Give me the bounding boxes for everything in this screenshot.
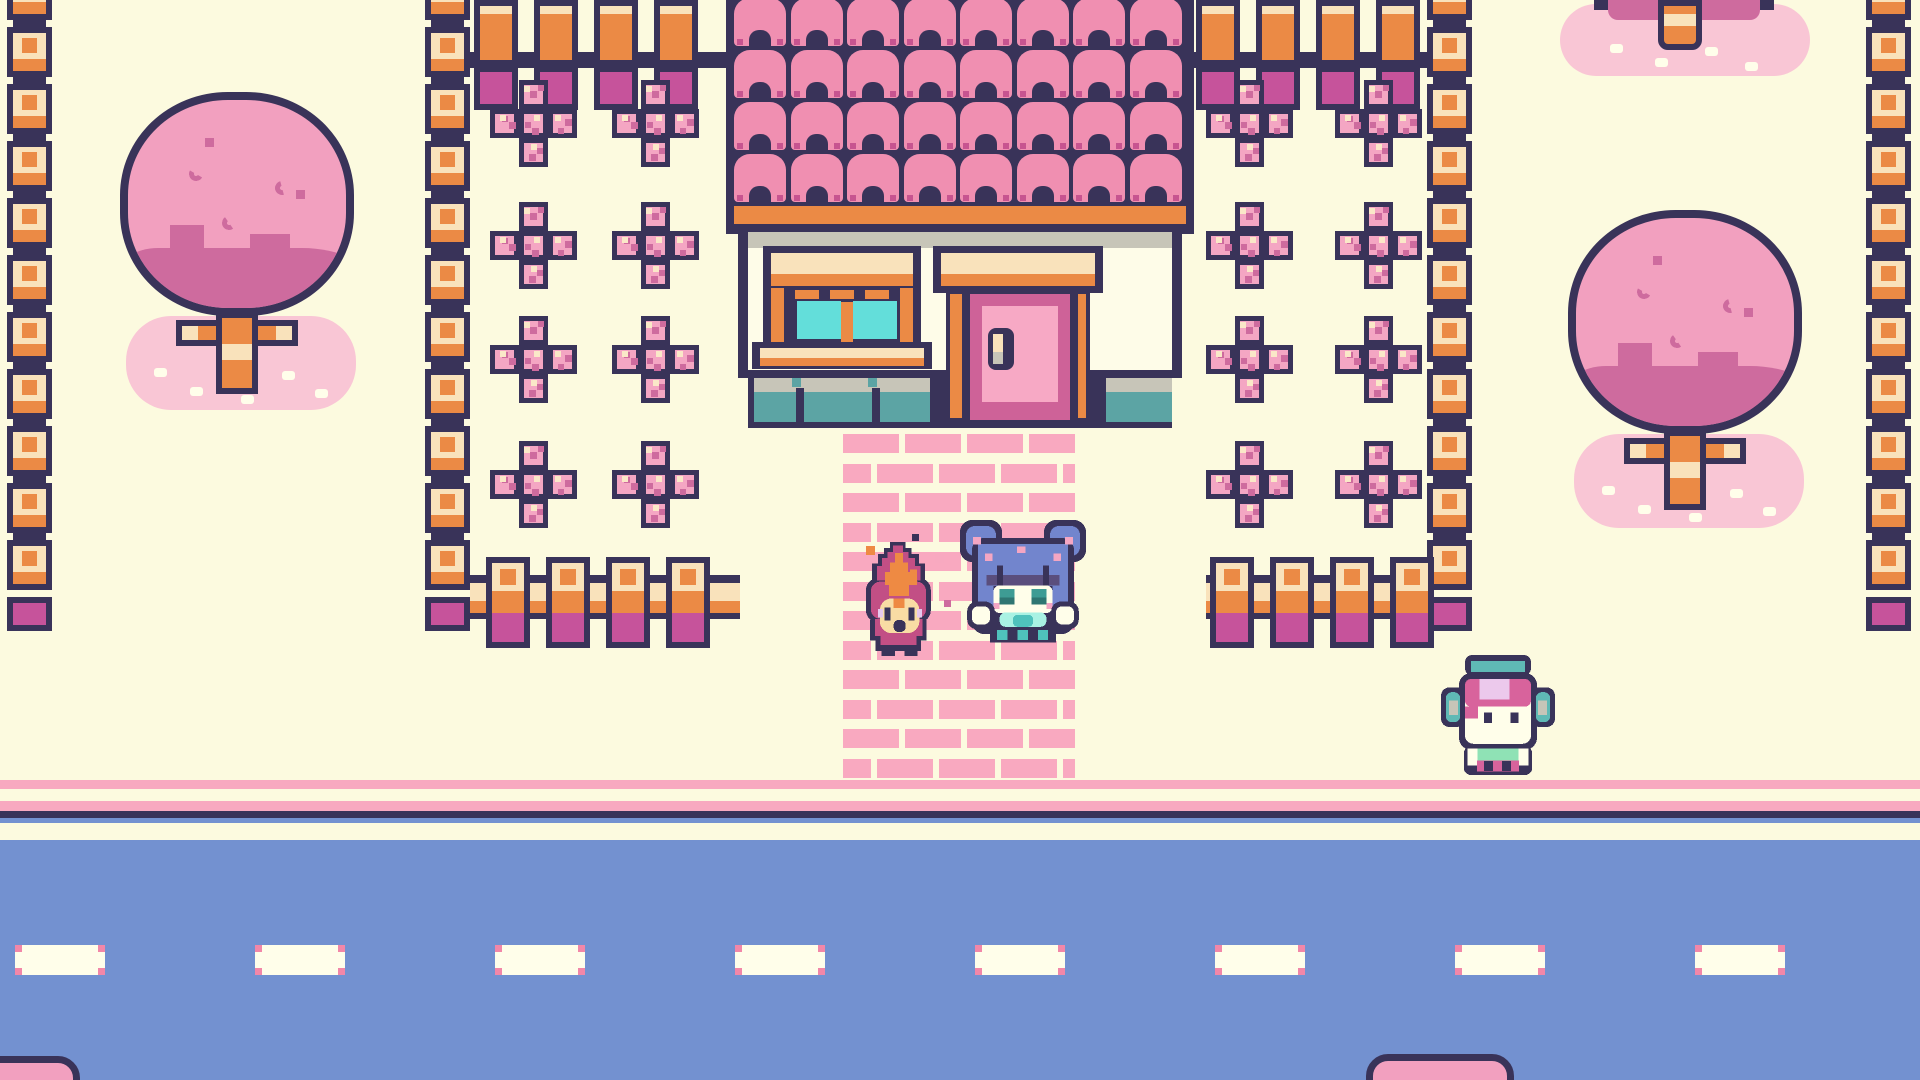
- blossom: [519, 345, 548, 374]
- blossom-shade: [1281, 241, 1288, 248]
- blossom-highlight: [1369, 86, 1375, 92]
- path-brick: [967, 670, 1023, 689]
- blossom: [612, 345, 641, 374]
- fence-post-stud: [1284, 569, 1300, 585]
- blossom-highlight: [653, 380, 659, 386]
- blossom-highlight: [646, 447, 652, 453]
- fence-post-link: [431, 305, 464, 312]
- flower-cluster: [1335, 202, 1422, 289]
- door-awning-trim: [941, 274, 1095, 286]
- fence-post-stud: [1442, 95, 1457, 110]
- blossom-highlight: [1250, 115, 1256, 121]
- blossom-shade: [652, 452, 659, 459]
- blossom: [641, 470, 670, 499]
- roof-tile-arch: [862, 82, 884, 98]
- blossom-shade: [1274, 128, 1280, 134]
- door-handle: [993, 334, 1003, 354]
- blossom-shade: [1354, 358, 1361, 365]
- roof-tile: [1073, 102, 1125, 150]
- window-sill: [760, 348, 924, 358]
- blossom-shade: [1375, 452, 1382, 459]
- path-brick: [877, 464, 933, 483]
- window-jamb: [771, 288, 784, 344]
- fence-post-stud: [22, 437, 37, 452]
- fence-post-block: [606, 557, 650, 648]
- fence-post-block: [654, 0, 698, 66]
- blossom: [1235, 231, 1264, 260]
- roof-tile-notch: [1133, 39, 1139, 45]
- blossom-shade: [654, 128, 661, 135]
- roof-tile-notch: [834, 143, 840, 149]
- path-brick: [877, 700, 933, 719]
- blossom-shade: [1225, 483, 1232, 490]
- blossom: [519, 231, 548, 260]
- blossom: [519, 499, 548, 528]
- fence-post-block: [1866, 27, 1911, 77]
- blossom-shade: [1410, 119, 1417, 126]
- headphones-kid-character[interactable]: [1441, 655, 1555, 775]
- blossom: [519, 441, 548, 470]
- blossom-highlight: [1271, 476, 1277, 482]
- blossom-shade: [537, 509, 543, 515]
- blossom-shade: [1246, 327, 1253, 334]
- window-lintel-dash: [795, 290, 819, 299]
- canopy-edge: [1594, 0, 1608, 10]
- garden-fence-left: [470, 557, 740, 648]
- roof-tile-arch: [1145, 82, 1167, 98]
- blossom-shade: [659, 384, 665, 390]
- flower-cluster: [490, 202, 577, 289]
- blossom-shade: [1241, 244, 1247, 250]
- blossom-highlight: [622, 351, 628, 357]
- blossom-highlight: [1400, 351, 1406, 357]
- roof-tile-notch: [907, 143, 913, 149]
- blossom: [641, 499, 670, 528]
- trunk-stripe: [222, 344, 252, 360]
- roof-tile-notch: [1003, 39, 1009, 45]
- path-brick: [843, 464, 871, 483]
- fence-post-stud: [440, 209, 455, 224]
- game-scene: [0, 0, 1920, 1080]
- roof-tile-notch: [1020, 39, 1026, 45]
- fence-post-block: [1427, 312, 1472, 362]
- roof-tile-notch: [1173, 91, 1179, 97]
- blossom-shade: [1375, 91, 1382, 98]
- blossom-highlight: [653, 144, 659, 150]
- fence-post-block: [546, 557, 590, 648]
- fence-post-block: [425, 0, 470, 20]
- fence-post-block: [1210, 557, 1254, 648]
- canopy-mark: [1721, 296, 1740, 315]
- blossom: [1335, 345, 1364, 374]
- roof-tile-arch: [749, 186, 771, 202]
- roof-tile-notch: [1003, 195, 1009, 201]
- blossom: [1364, 138, 1393, 167]
- blossom: [1264, 231, 1293, 260]
- blossom-highlight: [1400, 115, 1406, 121]
- flower-cluster: [1206, 316, 1293, 403]
- window-pane: [797, 301, 841, 339]
- fence-column-left-edge: [7, 0, 52, 631]
- blossom-shade: [654, 364, 661, 371]
- blossom-shade: [1382, 148, 1388, 154]
- blossom-shade: [1246, 213, 1253, 220]
- blossom: [1364, 470, 1393, 499]
- blossom-shade: [1245, 515, 1252, 522]
- blossom: [548, 470, 577, 499]
- window-lintel-dash: [830, 290, 854, 299]
- roof-tile-notch: [777, 195, 783, 201]
- fence-post-block: [1330, 557, 1374, 648]
- path-brick: [1001, 759, 1057, 778]
- canopy-mark: [1635, 284, 1652, 301]
- roof-tile-notch: [1116, 39, 1122, 45]
- roof-tile: [791, 154, 843, 202]
- blossom-shade: [1377, 489, 1384, 496]
- blossom-highlight: [1216, 351, 1222, 357]
- blossom-shade: [680, 250, 686, 256]
- roof-tile-notch: [794, 39, 800, 45]
- path-brick: [939, 464, 995, 483]
- blossom-highlight: [656, 237, 662, 243]
- fence-post-stud: [1881, 152, 1896, 167]
- blossom-shade: [651, 390, 658, 397]
- roof-tile-arch: [1088, 30, 1110, 46]
- blossom-highlight: [1240, 86, 1246, 92]
- flower-cluster: [1335, 441, 1422, 528]
- canopy-dot: [1744, 308, 1753, 317]
- blossom-shade: [529, 390, 536, 397]
- fence-post-base: [1866, 597, 1911, 631]
- blossom-highlight: [531, 505, 537, 511]
- fence-post-block: [7, 84, 52, 134]
- blossom: [1364, 202, 1393, 231]
- roof-tile: [1073, 0, 1125, 46]
- roof-tile: [904, 0, 956, 46]
- blossom-shade: [1274, 489, 1280, 495]
- blossom-shade: [1248, 489, 1255, 496]
- fence-post-stud: [22, 551, 37, 566]
- roof-tile-notch: [850, 143, 856, 149]
- path-brick: [1029, 434, 1075, 453]
- blossom-shade: [660, 85, 666, 91]
- road-lane-dash: [1455, 945, 1545, 975]
- path-brick: [1001, 700, 1057, 719]
- roof-tile-notch: [963, 195, 969, 201]
- fence-post-stud: [500, 569, 516, 585]
- canopy-mark: [187, 166, 204, 183]
- fence-post-block: [425, 369, 470, 419]
- fence-post-stud: [1344, 569, 1360, 585]
- road-lane-dash: [735, 945, 825, 975]
- roof-tile-arch: [919, 82, 941, 98]
- fence-post-stud: [1442, 38, 1457, 53]
- road-curb: [0, 823, 1920, 840]
- flame-spirit-character[interactable]: [854, 542, 938, 656]
- fence-post-link: [1872, 476, 1905, 483]
- blossom: [519, 260, 548, 289]
- blossom-shade: [1403, 489, 1409, 495]
- blossom-highlight: [1250, 351, 1256, 357]
- fence-post-link: [13, 77, 46, 84]
- blossom-shade: [558, 128, 564, 134]
- blossom-highlight: [500, 351, 506, 357]
- blossom: [641, 80, 670, 109]
- flower-cluster: [1335, 80, 1422, 167]
- blossom-shade: [1253, 384, 1259, 390]
- road-lane-dash: [15, 945, 105, 975]
- fence-post-link: [1433, 77, 1466, 84]
- path-brick: [1029, 729, 1075, 748]
- blossom-shade: [1403, 364, 1409, 370]
- blossom-shade: [1248, 128, 1255, 135]
- fence-post-stud: [22, 38, 37, 53]
- roof-tile-arch: [975, 30, 997, 46]
- fence-post-stud: [560, 569, 576, 585]
- fence-post-block: [1866, 483, 1911, 533]
- blossom-shade: [687, 480, 694, 487]
- roof-tile: [1017, 0, 1069, 46]
- roof-tile: [847, 154, 899, 202]
- fence-post-link: [1433, 476, 1466, 483]
- blossom: [670, 109, 699, 138]
- roof-tile: [960, 0, 1012, 46]
- blossom-shade: [659, 270, 665, 276]
- blossom-highlight: [656, 476, 662, 482]
- blossom-highlight: [531, 144, 537, 150]
- blossom: [670, 470, 699, 499]
- fence-post-block: [425, 426, 470, 476]
- blossom-highlight: [1376, 266, 1382, 272]
- blossom-shade: [1374, 276, 1381, 283]
- path-brick: [967, 434, 1023, 453]
- roof-tile: [1017, 154, 1069, 202]
- roof-trim: [734, 206, 1186, 224]
- roof-tile-notch: [1020, 195, 1026, 201]
- roof-tile-notch: [794, 195, 800, 201]
- base-notch: [868, 378, 877, 387]
- roof-tile-notch: [737, 143, 743, 149]
- blossom: [612, 470, 641, 499]
- blossom-shade: [651, 276, 658, 283]
- blossom-shade: [509, 358, 516, 365]
- blossom-shade: [660, 446, 666, 452]
- fence-post-block: [425, 198, 470, 248]
- fence-post-block: [425, 483, 470, 533]
- blossom-shade: [652, 327, 659, 334]
- fence-post-block: [7, 27, 52, 77]
- blossom-highlight: [555, 115, 561, 121]
- blossom-shade: [565, 119, 572, 126]
- roof-tile-arch: [862, 134, 884, 150]
- fence-post-block: [7, 312, 52, 362]
- blossom-shade: [558, 489, 564, 495]
- blossom-shade: [647, 244, 653, 250]
- fence-post-block: [486, 557, 530, 648]
- blossom: [548, 109, 577, 138]
- roof-tile: [904, 154, 956, 202]
- blossom: [641, 109, 670, 138]
- petal-dash: [1730, 489, 1743, 498]
- roof-tile-notch: [1020, 91, 1026, 97]
- roof-tile: [1130, 0, 1182, 46]
- blossom-shade: [529, 515, 536, 522]
- blossom: [641, 138, 670, 167]
- blossom-shade: [1253, 270, 1259, 276]
- blossom-shade: [1382, 509, 1388, 515]
- blossom-shade: [1375, 213, 1382, 220]
- path-brick: [905, 493, 961, 512]
- girl-character[interactable]: [960, 514, 1086, 652]
- fence-post-stud: [22, 494, 37, 509]
- fence-post-link: [431, 134, 464, 141]
- roof-tile-notch: [1060, 39, 1066, 45]
- fence-post-link: [1433, 362, 1466, 369]
- road-border-line: [0, 811, 1920, 818]
- tree-trunk: [1658, 0, 1702, 50]
- roof-tile-notch: [1133, 195, 1139, 201]
- blossom-highlight: [1379, 237, 1385, 243]
- blossom-highlight: [653, 505, 659, 511]
- fence-post-stud: [1881, 266, 1896, 281]
- blossom-shade: [529, 154, 536, 161]
- roof-tile-notch: [834, 39, 840, 45]
- roof-tile-notch: [947, 143, 953, 149]
- blossom-shade: [647, 483, 653, 489]
- trunk-stripe: [1670, 462, 1700, 478]
- blossom: [1364, 260, 1393, 289]
- blossom: [1264, 109, 1293, 138]
- roof-tile-notch: [777, 91, 783, 97]
- roof-tile-arch: [1088, 134, 1110, 150]
- blossom-shade: [680, 489, 686, 495]
- roof-tile-arch: [919, 134, 941, 150]
- blossom-shade: [631, 358, 638, 365]
- blossom: [1264, 470, 1293, 499]
- fence-post-stud: [440, 551, 455, 566]
- blossom-shade: [1354, 483, 1361, 490]
- roof-tile: [1017, 102, 1069, 150]
- blossom-highlight: [1379, 351, 1385, 357]
- blossom-shade: [660, 321, 666, 327]
- roof-tile-arch: [975, 82, 997, 98]
- roof-tile-notch: [1173, 143, 1179, 149]
- blossom: [519, 470, 548, 499]
- roof-tile-arch: [1032, 82, 1054, 98]
- blossom-highlight: [1400, 476, 1406, 482]
- fence-post-stud: [440, 266, 455, 281]
- blossom-shade: [1383, 85, 1389, 91]
- blossom-shade: [1370, 483, 1376, 489]
- roof-tile-arch: [1088, 186, 1110, 202]
- roof-tile: [1073, 154, 1125, 202]
- tree-canopy: [1568, 210, 1802, 434]
- roof-tile: [847, 50, 899, 98]
- petal-dash: [1689, 513, 1702, 522]
- fence-post-block: [666, 557, 710, 648]
- blossom-shade: [652, 213, 659, 220]
- fence-post-block: [1427, 255, 1472, 305]
- blossom-highlight: [534, 351, 540, 357]
- fence-post-stud: [620, 569, 636, 585]
- blossom-highlight: [1376, 380, 1382, 386]
- blossom-highlight: [1379, 115, 1385, 121]
- roof-tile: [960, 154, 1012, 202]
- blossom-shade: [1403, 128, 1409, 134]
- blossom-shade: [1274, 250, 1280, 256]
- fence-post-stud: [1881, 323, 1896, 338]
- door-handle-shade: [993, 352, 1003, 364]
- flower-cluster: [612, 80, 699, 167]
- blossom-highlight: [1250, 476, 1256, 482]
- flower-cluster: [612, 316, 699, 403]
- roof-tile-notch: [1133, 143, 1139, 149]
- fence-post-stud: [440, 494, 455, 509]
- blossom: [1364, 316, 1393, 345]
- fence-post-block: [7, 255, 52, 305]
- flower-cluster: [612, 441, 699, 528]
- fence-post-block: [534, 0, 578, 66]
- roof-tile-notch: [963, 143, 969, 149]
- blossom-shade: [530, 91, 537, 98]
- blossom: [1235, 470, 1264, 499]
- blossom-highlight: [1240, 208, 1246, 214]
- blossom-highlight: [524, 447, 530, 453]
- blossom-shade: [1245, 276, 1252, 283]
- blossom-shade: [1254, 207, 1260, 213]
- blossom-shade: [631, 483, 638, 490]
- blossom-highlight: [1250, 237, 1256, 243]
- fence-column-left-garden: [425, 0, 470, 631]
- blossom-shade: [530, 452, 537, 459]
- blossom-shade: [687, 241, 694, 248]
- roof-tile: [1130, 102, 1182, 150]
- blossom-highlight: [622, 237, 628, 243]
- blossom-highlight: [656, 351, 662, 357]
- roof-tile-notch: [794, 91, 800, 97]
- blossom-highlight: [1369, 322, 1375, 328]
- roof-tile: [1073, 50, 1125, 98]
- petal-dash: [1638, 505, 1651, 514]
- fence-post-stud: [1442, 551, 1457, 566]
- fence-post-block: [1427, 369, 1472, 419]
- blossom-shade: [1253, 509, 1259, 515]
- blossom-shade: [565, 480, 572, 487]
- blossom-highlight: [677, 237, 683, 243]
- blossom-shade: [1383, 321, 1389, 327]
- roof-tile: [791, 102, 843, 150]
- base-notch: [792, 378, 801, 387]
- fence-column-right-garden: [1427, 0, 1472, 631]
- roof-tile-notch: [907, 195, 913, 201]
- blossom-highlight: [1247, 380, 1253, 386]
- fence-post-link: [431, 20, 464, 27]
- fence-post-block: [1866, 426, 1911, 476]
- fence-post-block: [7, 540, 52, 590]
- path-brick: [939, 700, 995, 719]
- fence-post-stud: [1881, 551, 1896, 566]
- blossom-shade: [538, 321, 544, 327]
- path-brick: [1063, 759, 1075, 778]
- roof-tile-arch: [1032, 134, 1054, 150]
- canopy-edge: [1760, 0, 1774, 10]
- blossom-shade: [538, 207, 544, 213]
- fence-column-right-edge: [1866, 0, 1911, 631]
- fence-post-stud: [1442, 323, 1457, 338]
- fence-post-link: [1872, 533, 1905, 540]
- blossom-shade: [537, 384, 543, 390]
- blossom: [1206, 470, 1235, 499]
